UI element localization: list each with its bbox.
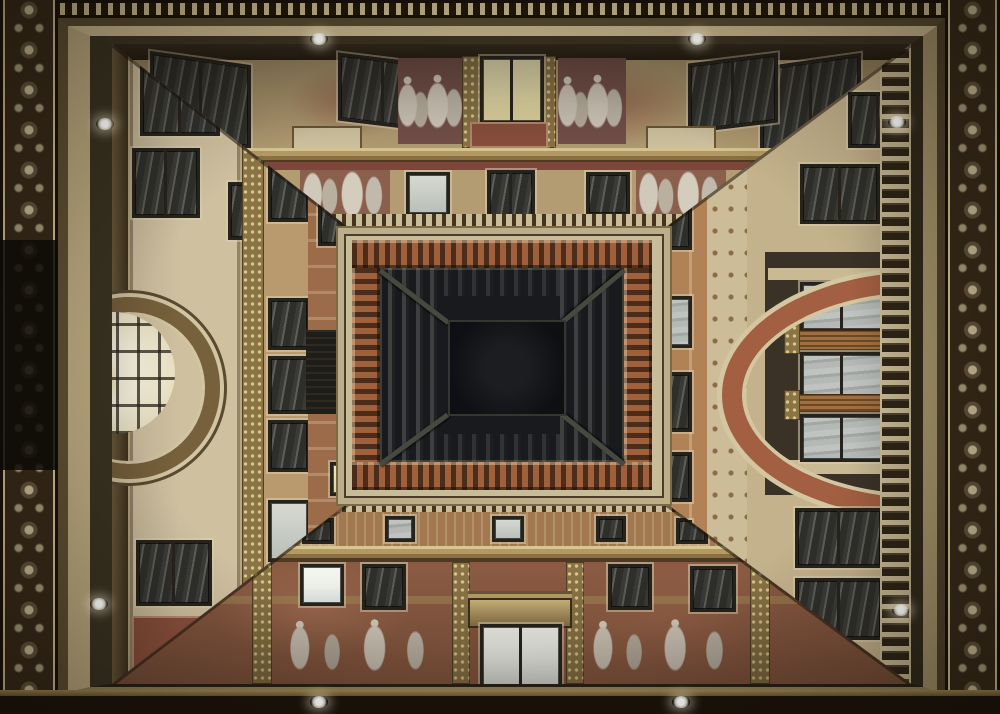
ceiling-lamp: [96, 118, 114, 130]
skylight-cornice-bottom: [352, 462, 652, 490]
ornamental-frieze-left: [0, 0, 58, 714]
dentil-frieze-top: [0, 0, 1000, 18]
ceiling-lamp: [90, 598, 108, 610]
ceiling-lamp: [892, 604, 910, 616]
ceiling-lamp: [310, 33, 328, 45]
ceiling-lamp: [672, 696, 690, 708]
skylight-cornice-left: [352, 268, 380, 462]
cornice-shadow-bottom: [0, 696, 1000, 714]
courtyard-upward-photo: [0, 0, 1000, 714]
glass-reflection: [444, 268, 560, 296]
ornamental-frieze-right: [945, 0, 1000, 714]
skylight-apex: [448, 320, 566, 416]
skylight-cornice-top: [352, 240, 652, 268]
ceiling-lamp: [888, 116, 906, 128]
ceiling-lamp: [688, 33, 706, 45]
ceiling-lamp: [310, 696, 328, 708]
glass-reflection: [444, 434, 560, 462]
skylight-cornice-right: [624, 268, 652, 462]
gallery-opening-shadow: [0, 240, 58, 470]
